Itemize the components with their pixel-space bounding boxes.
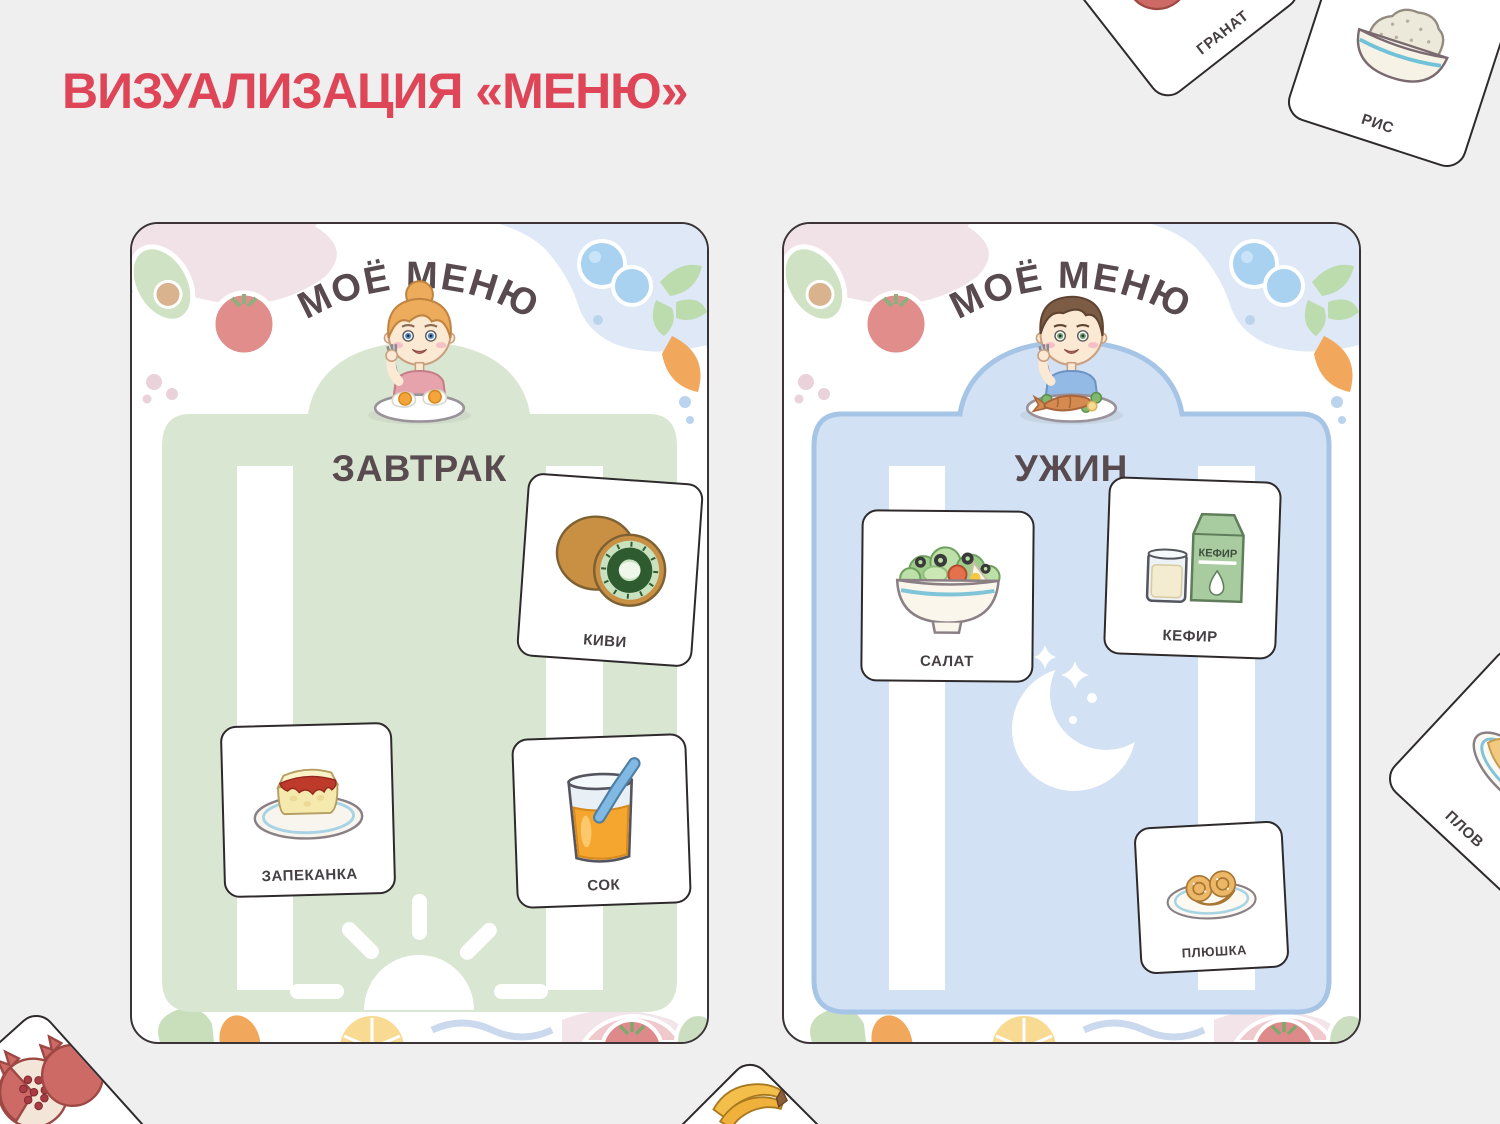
casserole-icon	[244, 738, 372, 864]
food-card-kiwi: КИВИ	[516, 472, 704, 668]
page-title: ВИЗУАЛИЗАЦИЯ «МЕНЮ»	[62, 62, 688, 120]
kiwi-icon	[542, 490, 679, 634]
loose-card-banana	[616, 1056, 885, 1124]
loose-card-rice: РИС	[1283, 0, 1500, 172]
loose-card-pilaf: ПЛОВ	[1381, 641, 1500, 910]
salad-icon	[884, 525, 1011, 649]
kefir-carton-label: КЕФИР	[1198, 547, 1237, 560]
food-card-salad: САЛАТ	[860, 509, 1034, 683]
food-card-juice: СОК	[511, 733, 692, 909]
food-card-bun: ПЛЮШКА	[1133, 820, 1289, 975]
food-card-label: КИВИ	[583, 631, 628, 651]
food-card-label: ЗАПЕКАНКА	[261, 866, 358, 886]
menu-board-breakfast: МОЁ МЕНЮ ЗАВТРАК	[130, 222, 709, 1044]
food-card-label: КЕФИР	[1162, 627, 1218, 646]
bun-icon	[1156, 837, 1267, 942]
girl-eating-icon	[337, 280, 502, 430]
banana-icon	[682, 1056, 818, 1124]
rice-icon	[1323, 0, 1483, 131]
pomegranate-icon	[0, 1007, 132, 1124]
food-card-label: СОК	[587, 876, 620, 894]
food-card-casserole: ЗАПЕКАНКА	[220, 722, 396, 898]
loose-card-pomegranate: ГРАНАТ	[1054, 0, 1307, 104]
juice-icon	[536, 750, 667, 875]
slide: ВИЗУАЛИЗАЦИЯ «МЕНЮ»	[0, 0, 1500, 1124]
boy-eating-icon	[989, 280, 1154, 430]
food-card-kefir: КЕФИР КЕФИР	[1103, 476, 1282, 660]
food-card-label: ПЛЮШКА	[1181, 942, 1247, 960]
food-card-label: САЛАТ	[920, 653, 974, 670]
menu-board-dinner: МОЁ МЕНЮ	[782, 222, 1361, 1044]
kefir-icon: КЕФИР	[1128, 493, 1258, 626]
